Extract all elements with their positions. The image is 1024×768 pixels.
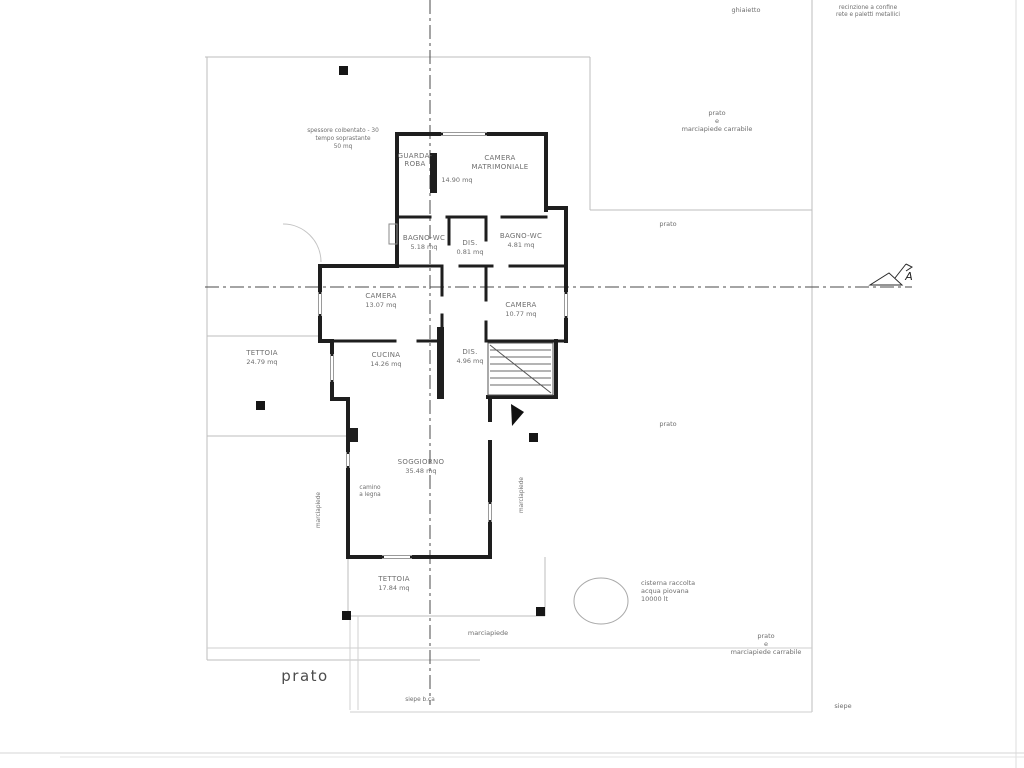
prato-marciapiede-bottom-3: marciapiede carrabile (731, 648, 802, 656)
room-area-dis-giorno: 4.96 mq (457, 357, 484, 365)
cistern-note-3: 10000 lt (641, 595, 669, 603)
site-label-ghiaietto: ghiaietto (732, 6, 761, 14)
scanned-floor-plan-page: A (0, 0, 1024, 768)
floor-plan-canvas: A (0, 0, 1024, 768)
cistern-circle (574, 578, 628, 624)
fence-note-2: rete e paletti metallici (836, 12, 900, 18)
room-label-guardaroba-2: ROBA (404, 160, 425, 168)
note-top-left-2: tempo soprastante (315, 136, 371, 142)
room-label-camera-matrimoniale-2: MATRIMONIALE (471, 163, 528, 171)
site-label-prato-big: prato (281, 667, 328, 685)
room-label-dis-giorno: DIS. (462, 348, 477, 356)
site-label-marciapiede-right: marciapiede (519, 477, 525, 513)
prato-marciapiede-top-2: e (715, 117, 719, 125)
fence-note-1: recinzione a confine (839, 5, 898, 11)
section-letter-a: A (904, 270, 913, 283)
note-top-left-1: spessore coibentato - 30 (307, 128, 379, 134)
room-label-bagno-dx: BAGNO-WC (500, 232, 542, 240)
room-label-cucina: CUCINA (372, 351, 401, 359)
room-area-bagno-sx: 5.18 mq (411, 243, 438, 251)
room-area-cucina: 14.26 mq (370, 360, 401, 368)
room-label-guardaroba-1: GUARDA- (398, 152, 433, 160)
room-label-tettoia-ovest: TETTOIA (245, 349, 278, 357)
room-label-soggiorno: SOGGIORNO (398, 458, 445, 466)
prato-marciapiede-top-1: prato (708, 109, 725, 117)
room-area-tettoia-ovest: 24.79 mq (246, 358, 277, 366)
room-label-dis-notte: DIS. (462, 239, 477, 247)
room-area-bagno-dx: 4.81 mq (508, 241, 535, 249)
site-label-marciapiede-left: marciapiede (316, 492, 322, 528)
note-camino-1: camino (359, 485, 381, 491)
room-area-camera-sx: 13.07 mq (365, 301, 396, 309)
room-area-tettoia-sud: 17.84 mq (378, 584, 409, 592)
note-top-left-3: 50 mq (334, 144, 353, 150)
site-label-siepe: siepe (834, 702, 851, 710)
room-label-tettoia-sud: TETTOIA (377, 575, 410, 583)
cistern-note-1: cisterna raccolta (641, 579, 695, 587)
fireplace-block (348, 428, 358, 442)
staircase (488, 343, 553, 395)
room-area-camera-matrimoniale: 14.90 mq (441, 176, 472, 184)
room-labels: GUARDA- ROBA CAMERA MATRIMONIALE 14.90 m… (245, 152, 542, 592)
site-label-prato-2: prato (659, 420, 676, 428)
site-label-marciapiede-bottom: marciapiede (468, 629, 508, 637)
room-label-camera-dx: CAMERA (505, 301, 536, 309)
gate-swing-arc (283, 224, 321, 262)
cistern-note-2: acqua piovana (641, 587, 689, 595)
site-boundary-lines (205, 0, 812, 712)
room-label-camera-sx: CAMERA (365, 292, 396, 300)
room-area-soggiorno: 35.48 mq (405, 467, 436, 475)
prato-marciapiede-bottom-2: e (764, 640, 768, 648)
room-label-bagno-sx: BAGNO-WC (403, 234, 445, 242)
room-area-dis-notte: 0.81 mq (457, 248, 484, 256)
kitchen-spine-wall (437, 327, 444, 399)
entrance-arrow-icon (511, 404, 524, 426)
note-camino-2: a legna (359, 492, 381, 498)
site-label-prato-1: prato (659, 220, 676, 228)
room-label-camera-matrimoniale-1: CAMERA (484, 154, 515, 162)
room-area-camera-dx: 10.77 mq (505, 310, 536, 318)
scan-edge-artifacts (0, 0, 1024, 768)
prato-marciapiede-bottom-1: prato (757, 632, 774, 640)
centerline-axes (205, 0, 912, 705)
site-label-siepe-bassa: siepe b.ca (405, 697, 435, 703)
prato-marciapiede-top-3: marciapiede carrabile (682, 125, 753, 133)
